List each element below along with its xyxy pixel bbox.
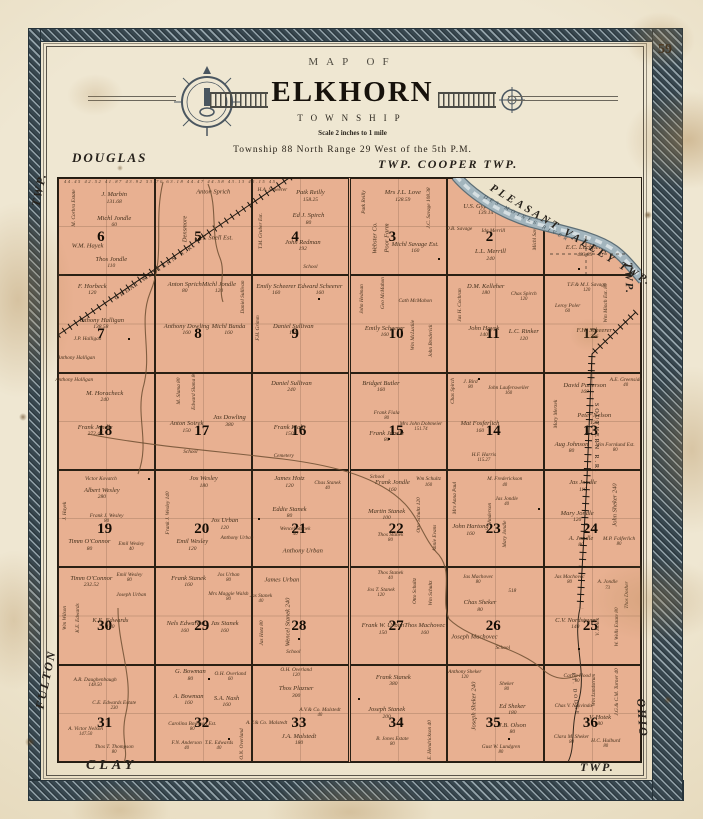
section-24: 24Jas Jondle110John Sheker 240Mary Jondl…	[544, 470, 641, 567]
parcel-label: Victor Kovatch	[85, 476, 117, 482]
parcel-label: Emil Wesley80	[116, 572, 142, 584]
parcel-label: Jas Machovec80	[554, 574, 584, 586]
parcel-label: Peter Nelson120	[577, 413, 611, 427]
parcel-label: V. Holek	[595, 618, 601, 636]
parcel-label: Wencel Stanek 240	[284, 597, 291, 646]
parcel-label: 518	[508, 588, 516, 594]
parcel-label: Carrie Hood80	[564, 673, 591, 685]
parcel-label: T.T. Snell Est.	[197, 234, 233, 241]
parcel-label: Webster Co.	[372, 222, 379, 254]
parcel-label: Emily Scheerer160	[365, 325, 405, 339]
parcel-label: Frank Jondle160	[375, 479, 410, 493]
section-31: 31A.R. Daughenbaugh148.50C.E. Edwards Es…	[58, 665, 155, 762]
parcel-label: Jas Dowling380	[213, 414, 246, 428]
parcel-label: Thos Machovec160	[404, 622, 445, 636]
parcel-label: Edward Slama 80	[191, 372, 197, 410]
parcel-label: T.F.& M.J. Savage120	[567, 282, 606, 294]
parcel-label: John Hayek140	[468, 325, 499, 339]
section-29: 29Frank Stanek160Jos Urban80Mrs Maggie W…	[155, 567, 252, 664]
parcel-label: F.N. Anderson40	[171, 740, 201, 752]
parcel-label: F.H. Scheerer236	[577, 327, 613, 341]
parcel-label: Bridget Butler160	[362, 380, 399, 394]
parcel-label: A.V.& Co. Malstedt40	[299, 708, 340, 720]
parcel-label: Patk Reilly158.25	[296, 189, 325, 203]
section-36: 36Carrie Hood80Wm LundstrumJ.G.& C.M. Tu…	[544, 665, 641, 762]
section-5: 5Anton SprichDensmoreT.T. Snell Est.	[155, 178, 252, 275]
section-16: 16Daniel Sullivan240Frank Fiala150Cemete…	[252, 373, 349, 470]
section-19: 19Victor KovatchJ. HayekAlbert Wesley280…	[58, 470, 155, 567]
parcel-label: Clara M. Sheker80	[554, 734, 589, 746]
parcel-label: A. Jondle80	[569, 535, 594, 549]
parcel-label: A. Jondle73	[598, 580, 618, 592]
parcel-label: J.B. Olson80	[499, 722, 526, 736]
section-26: 26Jas Machovec80518Chas Sheker80Joseph M…	[447, 567, 544, 664]
parcel-label: Daniel Sullivan160	[273, 323, 314, 337]
parcel-label: M.P. Falferlich80	[603, 536, 635, 548]
parcel-label: Chas Stanek40	[314, 480, 340, 492]
parcel-label: Ida Merrill	[481, 228, 505, 234]
parcel-label: Jos Urban120	[211, 517, 238, 531]
section-11: 11D.M. Kelleher180Jas H. CochranChas Spi…	[447, 275, 544, 372]
parcel-label: Anthony Halligan138.58	[78, 317, 124, 331]
section-9: 9Emily Scheerer160Edward Scheerer160F.H.…	[252, 275, 349, 372]
parcel-label: School	[286, 649, 300, 655]
parcel-label: Frank Stanek380	[376, 674, 411, 688]
parcel-label: School	[496, 645, 510, 651]
parcel-label: H.C. Hulburd80	[591, 738, 620, 750]
parcel-label: F.H. Grimm	[255, 315, 261, 340]
parcel-label: Frank Stanek160	[171, 575, 206, 589]
section-7: 7F. Horbeck120Anthony Halligan138.58J.P.…	[58, 275, 155, 372]
section-30: 30Timm O'Connor232.52Emil Wesley80Joseph…	[58, 567, 155, 664]
parcel-label: Anton Sprich80	[168, 281, 202, 295]
parcel-label: Aug Johnson80	[555, 441, 589, 455]
township-legal-description: Township 88 North Range 29 West of the 5…	[60, 145, 645, 155]
parcel-label: Mat Fosferlich160	[461, 420, 500, 434]
parcel-label: Jos Urban80	[217, 572, 239, 584]
parcel-label: Wm Minch Est. 80	[603, 283, 609, 322]
parcel-label: Mrs Maggie Walsh80	[208, 591, 248, 603]
parcel-label: A.E. Greenside40	[610, 377, 642, 389]
parcel-label: U.S. Gypsum Co.139.14	[463, 203, 508, 217]
section-22: 22SchoolFrank Jondle160Wm Schultz160Mart…	[350, 470, 447, 567]
parcel-label: Frank Fiala80	[374, 410, 400, 422]
parcel-label: Patk Reilly	[361, 190, 367, 213]
parcel-label: Jas H. Cochran	[457, 288, 463, 321]
parcel-label: Chas Spirch120	[511, 292, 537, 304]
parcel-label: Jas Stanek160	[211, 621, 239, 635]
parcel-label: J.C. Savage 108.38	[425, 187, 431, 228]
section-4: 4H.A. ScheererPatk Reilly158.25Ed J. Spi…	[252, 178, 349, 275]
map-title: ELKHORN	[60, 76, 645, 109]
parcel-label: J. Hayek	[62, 502, 68, 521]
parcel-label: Michl Jondle60	[97, 215, 131, 229]
parcel-label: Thos Stanek40	[378, 570, 404, 582]
parcel-label: Jas Machovec80	[463, 574, 493, 586]
parcel-label: Poor Farm	[383, 224, 390, 253]
parcel-label: Jas Jondle110	[569, 479, 597, 493]
parcel-label: Chas V. Nekvinda	[555, 703, 592, 709]
parcel-label: Jas Jondle40	[495, 496, 518, 508]
parcel-label: J.P. Halligan	[74, 336, 102, 342]
parcel-label: Edward Scheerer160	[298, 283, 343, 297]
parcel-label: Sheker80	[499, 681, 513, 693]
parcel-label: M. Slama 80	[176, 377, 182, 404]
parcel-label: Densmore	[181, 215, 188, 241]
parcel-label: Michl Savage Est.160	[392, 241, 439, 255]
parcel-label: Ed J. Spirch80	[293, 212, 325, 226]
parcel-label: Eddie Stanek80	[272, 506, 306, 520]
parcel-label: John Broderick	[428, 325, 434, 358]
parcel-label: Annie Evans	[432, 524, 438, 551]
parcel-label: G. Bowman80	[175, 668, 206, 682]
parcel-label: Carolina Bowman Est.80	[168, 721, 216, 733]
parcel-label: A.R. Daughenbaugh148.50	[74, 677, 117, 689]
parcel-label: Otto Schultz 120	[416, 497, 422, 532]
parcel-label: Mary Jondle	[502, 520, 508, 547]
section-8: 8Anton Sprich80Michl Jondle120Daniel Sul…	[155, 275, 252, 372]
parcel-label: T.M. Gruber Est.	[258, 213, 264, 249]
parcel-label: Wm Lundstrum	[591, 674, 597, 707]
survey-measurements-row: 44.45 42.52 41.87 43.92 53.70 63.18 44.4…	[64, 179, 484, 184]
parcel-label: C.E. Edwards Estate230	[92, 700, 136, 712]
neighbor-label-clay: CLAY	[86, 758, 137, 774]
parcel-label: O.N. Overland	[239, 728, 245, 759]
section-27: 27Thos Stanek40Jos T. Stanek120Otto Schu…	[350, 567, 447, 664]
lace-border-right	[652, 28, 683, 801]
title-cartouche: MAP OF ELKHORN TOWNSHIP Scale 2 inches t…	[60, 50, 645, 160]
parcel-label: Cath McMahon	[399, 298, 432, 304]
parcel-label: Mary Jondle120	[561, 510, 594, 524]
parcel-label: O.H. Overland120	[280, 667, 312, 679]
parcel-label: Daniel Sullivan	[240, 281, 246, 314]
parcel-label: H.A. Scheerer	[258, 187, 288, 193]
parcel-label: A. Bowman160	[174, 693, 204, 707]
parcel-label: Martin Stanek100	[368, 508, 405, 522]
parcel-label: D.B. Savage	[446, 226, 472, 232]
parcel-label: Frank W. Urban150	[362, 622, 405, 636]
neighbor-label-twp-bottom-right: TWP.	[580, 760, 615, 775]
parcel-label: Wm Schultz	[428, 581, 434, 606]
parcel-label: H.F. Harris115.27	[472, 452, 496, 464]
parcel-label: John Redman192	[285, 239, 321, 253]
parcel-label: David Patterson160	[563, 382, 606, 396]
title-kicker: MAP OF	[60, 56, 645, 68]
map-scale: Scale 2 inches to 1 mile	[60, 129, 645, 137]
parcel-label: Joseph Sheker 240	[471, 681, 478, 730]
section-33: 33O.H. Overland120Thos Plazner300A.V.& C…	[252, 665, 349, 762]
parcel-label: Frank Jondle272.45	[78, 424, 113, 438]
parcel-label: Wm Schultz160	[416, 477, 441, 489]
page-number: 59	[658, 42, 672, 58]
parcel-label: Mrs Anna Paul	[452, 482, 458, 514]
parcel-label: Wencel Stanek40	[280, 526, 311, 538]
section-21: 21James Hotz120Chas Stanek40Eddie Stanek…	[252, 470, 349, 567]
parcel-label: Anthony Halligan	[55, 377, 93, 383]
parcel-label: Daniel Sullivan240	[271, 380, 312, 394]
parcel-label: Thos Stanek80	[378, 532, 404, 544]
section-3: 3Mrs J.L. Love128.59Patk ReillyJ.C. Sava…	[350, 178, 447, 275]
neighbor-label-cooper: TWP. COOPER TWP.	[378, 157, 518, 172]
section-32: 32G. Bowman80O.H. Overland60A. Bowman160…	[155, 665, 252, 762]
parcel-label: W. Wells Estate 80	[614, 608, 620, 647]
parcel-label: Wm Wilson	[62, 606, 68, 630]
parcel-label: L.L. Merrill240	[475, 248, 506, 262]
parcel-label: Leroy Poler60	[555, 303, 580, 315]
parcel-label: J.A. Malstedt180	[282, 733, 316, 747]
parcel-label: Mary Merzek	[553, 399, 559, 427]
parcel-label: M. Horacheck240	[86, 390, 123, 404]
parcel-label: John Sheker 240	[612, 484, 619, 527]
neighbor-label-twp-right: TWP.	[622, 262, 635, 295]
parcel-label: Anthony Dowling160	[164, 323, 210, 337]
parcel-label: Thos Jondle110	[96, 256, 128, 270]
parcel-label: Emil Wesley40	[118, 541, 144, 553]
parcel-label: A. Victor Nelson147.50	[68, 727, 103, 739]
parcel-label: Timm O'Connor232.52	[70, 575, 112, 589]
parcel-label: Emily Scheerer160	[256, 283, 296, 297]
parcel-label: James Hotz120	[274, 476, 304, 490]
parcel-label: Jos Wesley180	[190, 476, 218, 490]
parcel-label: John Hartong160	[452, 523, 488, 537]
parcel-label: Joseph Stanek200	[368, 706, 405, 720]
section-20: 20Jos Wesley180Frank J. Wesley 140Jos Ur…	[155, 470, 252, 567]
parcel-label: A.V.& Co. Malstedt	[246, 720, 287, 726]
parcel-label: Wm Fornlund Est.80	[596, 442, 635, 454]
parcel-label: Anthony Halligan	[57, 355, 95, 361]
parcel-label: James Urban	[264, 576, 299, 583]
parcel-label: C.V. Nordstrum140	[555, 617, 595, 631]
parcel-label: Frank J. Wesley 140	[165, 491, 171, 534]
section-17: 17M. Slama 80Edward Slama 80Anton Soirek…	[155, 373, 252, 470]
section-18: 18Anthony HalliganM. Horacheck240Frank J…	[58, 373, 155, 470]
parcel-label: Geo McMahon	[380, 278, 386, 310]
parcel-label: School	[303, 264, 317, 270]
parcel-label: Michl Jondle120	[202, 281, 236, 295]
parcel-label: John Laufersweiler160	[488, 385, 529, 397]
parcel-label: Albert Wesley280	[84, 487, 120, 501]
parcel-label: B. Jones Estate80	[376, 736, 409, 748]
parcel-label: Jos T. Stanek120	[367, 587, 395, 599]
parcel-label: Mrs J.L. Love128.59	[385, 189, 421, 203]
parcel-label: Mrs John Dobmeier151.74	[400, 421, 443, 433]
parcel-label: Joseph Urban	[116, 592, 146, 598]
parcel-label: M. Frederickson40	[487, 477, 522, 489]
parcel-label: School	[183, 449, 197, 455]
parcel-label: Thos Plazner300	[279, 685, 314, 699]
section-13: 13David Patterson160A.E. Greenside40Mary…	[544, 373, 641, 470]
parcel-label: John Hedman	[359, 284, 365, 314]
lace-border-bottom	[28, 780, 684, 801]
parcel-label: Anton Soirek150	[170, 420, 204, 434]
parcel-label: J.G.& C.M. Turner 40	[614, 669, 620, 716]
parcel-label: Anton Sprich	[196, 189, 230, 196]
parcel-label: J. Bird80	[463, 379, 477, 391]
section-14: 14Chas SpirchJ. Bird80John Laufersweiler…	[447, 373, 544, 470]
lace-border-top	[30, 28, 654, 42]
parcel-label: Emil Wesley120	[176, 538, 208, 552]
section-number: 20	[194, 521, 209, 538]
section-34: 34Frank Stanek380Joseph Stanek200B. Jone…	[350, 665, 447, 762]
section-35: 35Anthony Sheker120Joseph Sheker 240Shek…	[447, 665, 544, 762]
parcel-label: Ed Sheker180	[499, 703, 526, 717]
parcel-label: D.M. Kelleher180	[467, 283, 504, 297]
section-23: 23Mrs Anna PaulM. Frederickson40Jas Jond…	[447, 470, 544, 567]
parcel-label: Jas Hotz 80	[259, 621, 265, 646]
parcel-label: Anthony Sheker120	[448, 669, 481, 681]
section-10: 10John HedmanGeo McMahonCath McMahonEmil…	[350, 275, 447, 372]
parcel-label: Gust W. Lundgren80	[482, 744, 520, 756]
neighbor-label-ohio: OHIO	[633, 698, 651, 738]
parcel-label: Wm McLuckie	[410, 320, 416, 350]
parcel-label: Anthony Urban	[283, 547, 323, 554]
section-25: 25Jas Machovec80A. Jondle73Thos DosherC.…	[544, 567, 641, 664]
parcel-label: E. Hendrickson 40	[427, 720, 433, 760]
neighbor-label-douglas: DOUGLAS	[72, 150, 147, 166]
section-15: 15Bridget Butler160Frank Fiala80Frank Jo…	[350, 373, 447, 470]
section-28: 28James UrbanJas Stanek40Wencel Stanek 2…	[252, 567, 349, 664]
parcel-label: J. Marbin131.68	[101, 191, 127, 205]
parcel-label: Timm O'Connor80	[68, 538, 110, 552]
parcel-label: T.E. Edwards40	[205, 740, 233, 752]
parcel-label: K.E. Edwards	[75, 603, 81, 632]
parcel-label: V. Hotek80	[589, 714, 611, 728]
parcel-label: O.H. Overland60	[215, 671, 247, 683]
section-number: 28	[291, 618, 306, 635]
parcel-label: K.E. Edwards160	[92, 617, 128, 631]
parcel-label: F. Horbeck120	[78, 283, 107, 297]
section-6: 6M. Corbra EstateJ. Marbin131.68Michl Jo…	[58, 178, 155, 275]
parcel-label: M. Corbra Estate	[71, 189, 77, 226]
parcel-label: Michl Bunda160	[212, 323, 246, 337]
title-subtitle: TOWNSHIP	[60, 113, 645, 123]
parcel-label: Frank Fiala150	[274, 424, 306, 438]
parcel-label: S.A. Nash160	[214, 695, 239, 709]
parcel-label: Nels Edwards160	[167, 621, 203, 635]
parcel-label: Thos Dosher	[624, 581, 630, 608]
township-plat-map: 44.45 42.52 41.87 43.92 53.70 63.18 44.4…	[57, 177, 642, 763]
parcel-label: Chas Spirch	[450, 378, 456, 404]
parcel-label: L.C. Rinker120	[509, 329, 539, 343]
parcel-label: Joseph Machovec	[451, 633, 497, 640]
parcel-label: Anthony Urban	[221, 535, 254, 541]
parcel-label: Frank J. Wesley80	[90, 513, 124, 525]
parcel-label: Otto Schultz	[412, 578, 418, 604]
parcel-label: Cemetery	[274, 453, 294, 459]
parcel-label: W.M. Hayek	[72, 242, 104, 249]
parcel-label: Anderson	[486, 503, 492, 523]
parcel-label: Thos T. Thompson80	[95, 744, 134, 756]
parcel-label: Chas Sheker80	[464, 600, 497, 614]
parcel-label: Jas Stanek40	[250, 593, 273, 605]
lace-border-left	[28, 28, 41, 780]
